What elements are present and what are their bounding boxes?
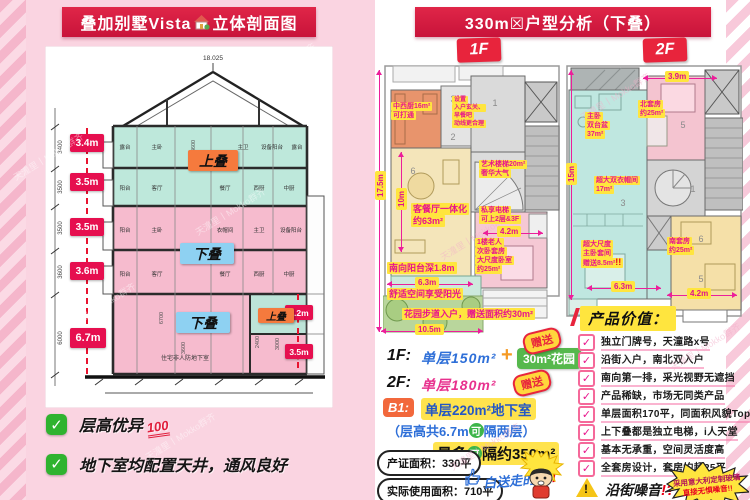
- check-glyph: ✓: [582, 372, 591, 385]
- room-number: 2: [450, 132, 455, 142]
- dim-label-6-3m: 6.3m: [415, 277, 439, 288]
- note-line: 37m²: [585, 130, 605, 139]
- room-number: 1: [690, 184, 695, 194]
- note-line: 约25m²: [667, 246, 694, 255]
- note-sunlight: 舒适空间享受阳光: [387, 288, 463, 300]
- room-label: 客厅: [151, 184, 163, 192]
- value-point-row: ✓ 独立门牌号，天潼路x号: [578, 333, 710, 351]
- note-private-lift: 私享电梯 可上2层&3F: [479, 206, 521, 224]
- note-line: 设置: [452, 96, 468, 104]
- section-panel: 叠加别墅Vista 立体剖面图 18.025: [0, 0, 375, 500]
- note-line: 主卧套间: [581, 249, 613, 258]
- value-point-row: ✓ 上下叠都是独立电梯，i人天堂: [578, 423, 738, 441]
- check-glyph: ✓: [582, 336, 591, 349]
- exclaim-glyph: !: [584, 482, 588, 496]
- ribbon-tail-left: [402, 12, 422, 40]
- note-line: 可上2层&3F: [479, 215, 521, 224]
- room-label: 西厨: [253, 271, 265, 278]
- value-header: 产品价值：: [580, 306, 676, 331]
- pink-check-icon: ✓: [578, 388, 595, 405]
- upper-stack-badge: 上叠: [188, 150, 238, 171]
- note-line: 南向阳台深1.8m: [387, 262, 457, 274]
- note-line: 花园步道入户，赠送面积约30m²: [402, 308, 535, 320]
- room-label: 客厅: [151, 270, 163, 278]
- height-split-note: （层高共6.7m可隔两层）: [387, 421, 536, 440]
- note-line: 入户玄关、: [452, 104, 486, 112]
- pink-check-icon: ✓: [578, 424, 595, 441]
- roof-elevation-value: 18.025: [203, 55, 223, 62]
- room-label: 露台: [291, 143, 303, 151]
- note-line: 超大尺度: [581, 240, 613, 249]
- ribbon-tail-left: [49, 12, 69, 40]
- house-icon: [193, 15, 210, 30]
- value-point-row: ✓ 沿街入户，南北双入户: [578, 351, 704, 369]
- check-glyph: ✓: [50, 416, 63, 434]
- height-badge-3-5m-b: 3.5m: [70, 218, 104, 236]
- room-label: 设备阳台: [280, 226, 303, 234]
- check-glyph: ✓: [50, 455, 63, 473]
- label-b1: B1:: [383, 398, 414, 417]
- check-glyph: ✓: [582, 426, 591, 439]
- room-label: 餐厅: [219, 184, 231, 192]
- left-title-part2: 立体剖面图: [212, 10, 297, 34]
- room-label: 露台: [119, 143, 131, 151]
- infographic-canvas: 叠加别墅Vista 立体剖面图 18.025: [0, 0, 750, 500]
- label-1f: 1F:: [387, 347, 411, 365]
- height-note-pre: （层高共6.7m: [387, 424, 469, 439]
- left-title-part1: 叠加别墅Vista: [81, 10, 192, 34]
- value-point-text: 上下叠都是独立电梯，i人天堂: [601, 423, 738, 441]
- check1-text: 层高优异100: [79, 412, 169, 437]
- note-elder-bedroom: 1楼老人 次卧套房 大尺度卧室 约25m²: [475, 238, 514, 274]
- note-exclaim: !!: [615, 257, 621, 267]
- room-number: 6: [410, 166, 415, 176]
- right-title-ribbon: 330m☒户型分析（下叠）: [415, 7, 711, 37]
- height-badge-3-6m: 3.6m: [70, 262, 104, 280]
- note-north-suite: 北套房 约25m²: [638, 100, 665, 118]
- green-check-icon: ✓: [46, 454, 67, 475]
- ke-badge: 可: [469, 423, 484, 438]
- check-glyph: ✓: [582, 444, 591, 457]
- pink-check-icon: ✓: [578, 442, 595, 459]
- pink-check-icon: ✓: [578, 334, 595, 351]
- value-point-row: ✓ 南向第一排，采光视野无遮挡: [578, 369, 735, 387]
- note-line: 主卧: [585, 112, 603, 121]
- note-line: 私享电梯: [479, 206, 511, 215]
- check-glyph: ✓: [582, 462, 591, 475]
- room-number: 5: [698, 274, 703, 284]
- note-closet: 超大双衣帽间 17m²: [594, 176, 640, 194]
- cad-dim: 6700: [159, 312, 165, 324]
- value-b1-area: 单层220m²地下室: [421, 398, 536, 420]
- check-glyph: ✓: [582, 354, 591, 367]
- cad-dim: 3400: [58, 140, 64, 154]
- room-label: 中厨: [283, 184, 295, 192]
- room-label: 餐厅: [219, 270, 231, 278]
- value-point-row: ✓ 产品稀缺，市场无同类产品: [578, 387, 725, 405]
- check1-label: 层高优异: [79, 418, 143, 435]
- room-label: 主卫: [237, 143, 249, 151]
- basement-label: 住宅非人防地下室: [161, 354, 209, 362]
- note-line: 次卧套房: [475, 247, 507, 256]
- value-point-text: 基本无承重，空间灵活度高: [601, 441, 725, 459]
- note-line: 奢华大气: [479, 169, 511, 178]
- dim-label-4-2m: 4.2m: [497, 226, 521, 237]
- room-number: 6: [698, 234, 703, 244]
- note-line: 动线更合理: [452, 120, 486, 128]
- cad-dim: 2400: [255, 336, 261, 348]
- dim-label-17-5m: 17.5m: [375, 171, 386, 200]
- room-label: 中厨: [283, 270, 295, 278]
- left-title-ribbon: 叠加别墅Vista 立体剖面图: [62, 7, 316, 37]
- cartoon-boy-sticker: [513, 448, 569, 500]
- check-glyph: ✓: [582, 408, 591, 421]
- note-garden: 花园步道入户，赠送面积约30m²: [402, 308, 535, 320]
- note-entry: 设置 入户玄关、 早餐吧 动线更合理: [452, 96, 486, 128]
- note-line: 1楼老人: [475, 238, 504, 247]
- room-label: 衣帽间: [217, 226, 234, 234]
- upper-stack-badge-small: 上叠: [258, 308, 294, 323]
- note-line: 17m²: [594, 185, 614, 194]
- room-label: 设备阳台: [261, 143, 284, 151]
- note-south-suite: 南套房 约25m²: [667, 237, 694, 255]
- thumbs-up-icon: [465, 468, 481, 486]
- cad-dim: 3000: [275, 338, 281, 350]
- room-label: 主卧: [151, 143, 163, 151]
- dim-label-3-9m: 3.9m: [665, 71, 689, 82]
- lower-stack-badge-1: 下叠: [180, 243, 234, 264]
- left-stripe-border: [0, 0, 26, 500]
- note-master-bath: 主卧 双台盆 37m²: [585, 112, 610, 139]
- note-line: 中西厨16m²: [391, 102, 432, 111]
- value-point-text: 独立门牌号，天潼路x号: [601, 333, 710, 351]
- note-line: 约63m²: [411, 215, 445, 227]
- height-badge-3-4m: 3.4m: [70, 134, 104, 152]
- note-living: 客餐厅一体化 约63m²: [411, 203, 469, 227]
- check-glyph: ✓: [582, 390, 591, 403]
- height-note-post: 隔两层）: [484, 424, 536, 439]
- right-title: 330m☒户型分析（下叠）: [465, 10, 661, 34]
- ribbon-tail-right: [309, 12, 329, 40]
- dim-label-4-2m-2f: 4.2m: [687, 288, 711, 299]
- note-line: 可打通: [391, 111, 416, 120]
- dim-line-15m: [571, 70, 572, 300]
- value-2f-area: 单层180m²: [421, 375, 496, 395]
- value-point-row: ✓ 基本无承重，空间灵活度高: [578, 441, 725, 459]
- hundred-emoji: 100: [146, 418, 170, 439]
- cad-dim: 3500: [58, 221, 64, 235]
- note-line: 约25m²: [475, 265, 502, 274]
- room-label: 阳台: [119, 270, 131, 278]
- room-label: 阳台: [119, 184, 131, 192]
- pink-check-icon: ✓: [578, 406, 595, 423]
- room-label: 阳台: [119, 226, 131, 234]
- note-line: 舒适空间享受阳光: [387, 288, 463, 300]
- value-point-text: 产品稀缺，市场无同类产品: [601, 387, 725, 405]
- note-line: 北套房: [638, 100, 663, 109]
- green-check-icon: ✓: [46, 414, 67, 435]
- note-balcony: 南向阳台深1.8m: [387, 262, 457, 274]
- tab-2f: 2F: [643, 37, 688, 63]
- lower-stack-badge-2: 下叠: [176, 312, 230, 333]
- height-badge-6-7m: 6.7m: [70, 328, 106, 348]
- height-badge-3-5m-c: 3.5m: [285, 344, 313, 359]
- note-line: 赠送8.5m²: [583, 260, 615, 267]
- cad-dim: 3600: [58, 265, 64, 279]
- note-line: 艺术楼梯20m²: [479, 160, 527, 169]
- pink-check-icon: ✓: [578, 352, 595, 369]
- warning-text: 沿街噪音: [605, 482, 661, 498]
- note-line: 南套房: [667, 237, 692, 246]
- ribbon-tail-right: [704, 12, 724, 40]
- left-check-row-2: ✓ 地下室均配置天井，通风良好: [46, 452, 287, 476]
- check2-text: 地下室均配置天井，通风良好: [79, 452, 287, 476]
- left-check-row-1: ✓ 层高优异100: [46, 412, 169, 437]
- value-point-text: 沿街入户，南北双入户: [601, 351, 704, 369]
- note-line: 客餐厅一体化: [411, 203, 469, 215]
- plan-panel: 330m☒户型分析（下叠） 1F 2F: [375, 0, 750, 500]
- cad-dim: 3600: [181, 342, 187, 354]
- note-line: 大尺度卧室: [475, 256, 514, 265]
- note-line: 早餐吧: [452, 112, 474, 120]
- cad-dim: 3500: [58, 180, 64, 194]
- plus-sign: +: [501, 344, 513, 367]
- room-label: 主卫: [253, 226, 265, 234]
- label-2f: 2F:: [387, 374, 411, 392]
- note-kitchen: 中西厨16m² 可打通: [391, 102, 432, 120]
- dim-label-10m: 10m: [396, 188, 407, 210]
- room-number: 5: [680, 120, 685, 130]
- value-point-text: 南向第一排，采光视野无遮挡: [601, 369, 735, 387]
- height-badge-3-5m-a: 3.5m: [70, 173, 104, 191]
- gift-sticker-2: 赠送: [511, 368, 553, 399]
- noise-solution-burst: 采用意大利定制玻璃 直接无惧噪音!!: [665, 462, 749, 500]
- dim-label-10-5m: 10.5m: [415, 324, 444, 335]
- note-master-suite: 超大尺度 主卧套间 赠送8.5m²!!: [581, 240, 623, 268]
- dim-label-6-3m-2f: 6.3m: [611, 281, 635, 292]
- note-line: 双台盆: [585, 121, 610, 130]
- note-stair: 艺术楼梯20m² 奢华大气: [479, 160, 527, 178]
- value-1f-area: 单层150m²: [421, 348, 496, 368]
- note-line: 超大双衣帽间: [594, 176, 640, 185]
- cad-dim: 6000: [58, 331, 64, 345]
- note-line: 约25m²: [638, 109, 665, 118]
- room-label: 主卧: [151, 226, 163, 234]
- room-number: 1: [492, 98, 497, 108]
- pink-check-icon: ✓: [578, 460, 595, 477]
- dim-line-17-5m: [379, 70, 380, 332]
- room-label: 西厨: [253, 185, 265, 192]
- value-point-row: ✓ 单层面积170平，同面积风貌Top: [578, 405, 750, 423]
- room-number: 3: [620, 198, 625, 208]
- pink-check-icon: ✓: [578, 370, 595, 387]
- tab-1f: 1F: [457, 37, 502, 63]
- value-point-text: 单层面积170平，同面积风貌Top: [601, 405, 750, 423]
- warning-icon: !: [576, 478, 598, 497]
- dim-label-15m: 15m: [566, 163, 577, 185]
